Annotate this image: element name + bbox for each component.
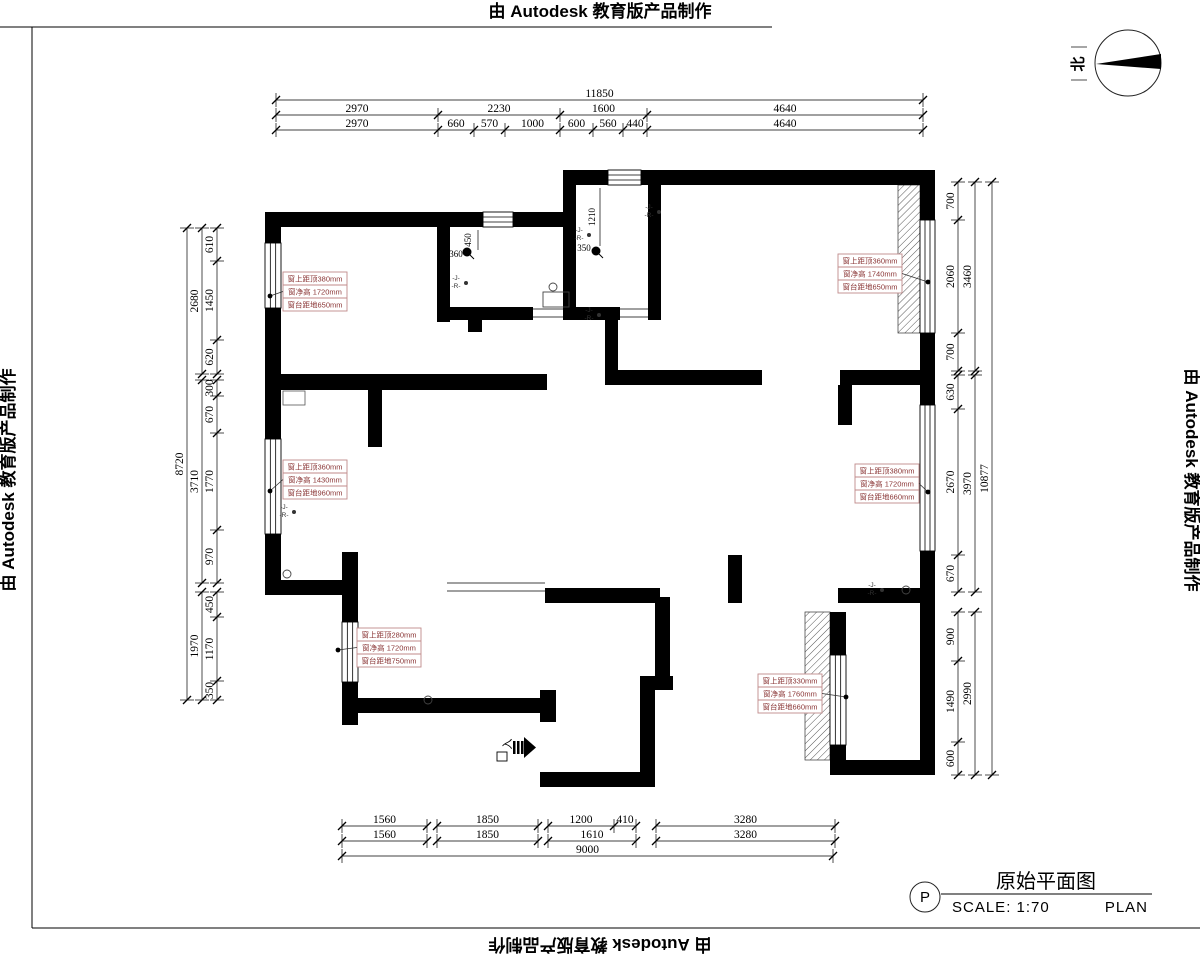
dim-label: 900 [945, 628, 957, 646]
wall [920, 612, 935, 760]
title-marker: P [920, 889, 930, 906]
wall [838, 385, 852, 425]
window-spec-text: 窗上距顶380mm [287, 274, 342, 284]
water-point [587, 233, 591, 237]
dim-label: 450 [204, 596, 216, 614]
dim-label: 670 [945, 565, 957, 583]
water-point-hot-label: -R- [279, 512, 288, 519]
dim-label: 1850 [476, 829, 499, 841]
dim-label: 1170 [204, 637, 216, 660]
wall [265, 212, 281, 244]
stamp-right: 由 Autodesk 教育版产品制作 [1182, 369, 1200, 592]
dim-label: 350 [577, 243, 591, 253]
dim-label: 440 [626, 118, 644, 130]
wall [728, 555, 742, 603]
dim-label: 4640 [774, 118, 797, 130]
window-spec-text: 窗上距顶380mm [859, 466, 914, 476]
wall [563, 170, 608, 185]
wall [445, 307, 533, 320]
water-point-cold-label: -J- [645, 204, 653, 211]
dim-label: 2680 [189, 289, 201, 312]
water-point-cold-label: -J- [452, 275, 460, 282]
window [830, 655, 846, 745]
window-spec-text: 窗净高 1740mm [843, 269, 897, 279]
water-point-cold-label: -J- [868, 582, 876, 589]
dim-label: 1560 [373, 814, 396, 826]
title-block: P 原始平面图 SCALE: 1:70 PLAN [910, 870, 1152, 916]
dim-label: 610 [204, 236, 216, 254]
dim-label: 2060 [945, 265, 957, 288]
wall [265, 308, 281, 439]
dim-label: 1770 [204, 470, 216, 493]
window-spec-text: 窗上距顶360mm [842, 256, 897, 266]
entry-arrow-bar [521, 741, 524, 754]
leader-dot [336, 648, 341, 653]
wall [920, 333, 935, 405]
water-point-cold-label: -J- [280, 504, 288, 511]
wall [265, 374, 547, 390]
dim-label: 2670 [945, 470, 957, 493]
wall [920, 551, 935, 612]
window-spec-text: 窗台距地650mm [842, 282, 897, 292]
wall [640, 676, 673, 690]
window-spec-text: 窗净高 1430mm [288, 475, 342, 485]
dim-label: 670 [204, 406, 216, 424]
floor-plan-sheet: 由 Autodesk 教育版产品制作 由 Autodesk 教育版产品制作 由 … [0, 0, 1200, 960]
dim-label: 1210 [587, 208, 597, 227]
entry-arrow-bar [513, 741, 516, 754]
wall [655, 597, 670, 677]
window-spec-text: 窗台距地960mm [287, 488, 342, 498]
wall [342, 595, 358, 625]
dim-label: 700 [945, 343, 957, 361]
fixture-circle [549, 283, 557, 291]
window [342, 622, 358, 682]
window-spec-text: 窗上距顶330mm [762, 676, 817, 686]
dim-label: 620 [204, 348, 216, 366]
dim-label: 2970 [346, 103, 369, 115]
dim-label: 660 [447, 118, 465, 130]
dim-label: 700 [945, 192, 957, 210]
window [920, 220, 935, 333]
water-point [292, 510, 296, 514]
dim-label: 1610 [581, 829, 604, 841]
dim-label: 3460 [962, 265, 974, 288]
wall [641, 170, 935, 185]
dim-label: 1600 [592, 103, 615, 115]
dim-label: 3970 [962, 472, 974, 495]
wall [342, 552, 358, 595]
window [608, 170, 641, 185]
entry-arrow-bar [517, 741, 520, 754]
leader-dot [926, 490, 931, 495]
wall [368, 390, 382, 447]
dim-label: 3280 [734, 829, 757, 841]
wall [540, 772, 655, 787]
window [265, 439, 281, 534]
stamp-left: 由 Autodesk 教育版产品制作 [0, 369, 18, 592]
water-point [657, 210, 661, 214]
dim-label: 1200 [570, 814, 593, 826]
water-point-cold-label: -J- [585, 307, 593, 314]
window [920, 405, 935, 551]
wall [513, 212, 567, 227]
floor-drain-tail [470, 255, 474, 259]
water-point-hot-label: -R- [867, 590, 876, 597]
window-spec-text: 窗净高 1720mm [362, 643, 416, 653]
dim-label: 630 [945, 383, 957, 401]
dim-label: 560 [599, 118, 617, 130]
dim-label: 4640 [774, 103, 797, 115]
north-arrow: 北 [1070, 30, 1161, 96]
window-spec-text: 窗台距地660mm [762, 702, 817, 712]
dim-label: 600 [568, 118, 586, 130]
drawing-scale: SCALE: 1:70 [952, 899, 1050, 916]
dim-label: 1000 [521, 118, 544, 130]
leader-dot [844, 695, 849, 700]
dim-label: 2990 [962, 682, 974, 705]
wall [563, 185, 576, 320]
dim-label: 300 [204, 379, 216, 397]
stamp-top: 由 Autodesk 教育版产品制作 [489, 1, 712, 21]
dim-label: 1970 [189, 634, 201, 657]
dim-label: 2230 [488, 103, 511, 115]
fixture-circle [283, 570, 291, 578]
dim-label: 600 [945, 750, 957, 768]
leader-dot [268, 294, 273, 299]
drawing-title: 原始平面图 [996, 870, 1096, 893]
stamp-bottom: 由 Autodesk 教育版产品制作 [489, 935, 712, 955]
window [265, 243, 281, 308]
wall [830, 745, 846, 775]
door-frame [283, 391, 305, 405]
window-spec-text: 窗净高 1760mm [763, 689, 817, 699]
water-point [597, 313, 601, 317]
dim-label: 2970 [346, 118, 369, 130]
window-spec-text: 窗上距顶280mm [361, 630, 416, 640]
wall [540, 690, 556, 722]
dim-label: 11850 [585, 88, 614, 100]
dim-label: 8720 [174, 452, 186, 475]
leader-dot [926, 280, 931, 285]
dim-label: 1490 [945, 690, 957, 713]
north-label: 北 [1070, 56, 1087, 71]
entry-arrow-head [524, 737, 536, 758]
window-spec-text: 窗台距地650mm [287, 300, 342, 310]
door-openings [283, 309, 648, 591]
wall [468, 320, 482, 332]
wall [265, 580, 345, 595]
wall [605, 370, 762, 385]
dim-label: 970 [204, 548, 216, 566]
wall [265, 212, 483, 227]
floor-drain-tail [599, 254, 603, 258]
water-point-cold-label: -J- [575, 227, 583, 234]
entry-square [497, 752, 507, 761]
window-spec-text: 窗净高 1720mm [860, 479, 914, 489]
wall [920, 185, 935, 220]
north-needle [1096, 54, 1161, 69]
drawing-plan-tag: PLAN [1105, 899, 1148, 916]
window-spec-text: 窗净高 1720mm [288, 287, 342, 297]
dim-label: 9000 [576, 844, 599, 856]
dim-label: 450 [463, 233, 473, 247]
window-spec-text: 窗上距顶360mm [287, 462, 342, 472]
window-spec-text: 窗台距地660mm [859, 492, 914, 502]
water-point [464, 281, 468, 285]
window-spec-text: 窗台距地750mm [361, 656, 416, 666]
dim-label: 570 [481, 118, 499, 130]
dim-label: 350 [204, 682, 216, 700]
dim-label: 3710 [189, 470, 201, 493]
water-point-hot-label: -R- [644, 212, 653, 219]
wall [830, 612, 846, 655]
wall [342, 698, 556, 713]
dim-label: 1560 [373, 829, 396, 841]
water-point [880, 588, 884, 592]
window [483, 212, 513, 227]
dim-label: 360 [449, 249, 463, 259]
entry-label: 入 [502, 739, 514, 750]
dim-label: 10877 [979, 464, 991, 493]
wall [640, 690, 655, 787]
wall [545, 588, 660, 603]
floor-plan-drawing: 由 Autodesk 教育版产品制作 由 Autodesk 教育版产品制作 由 … [0, 0, 1200, 960]
dim-label: 1450 [204, 289, 216, 312]
water-point-hot-label: -R- [584, 315, 593, 322]
dim-label: 3280 [734, 814, 757, 826]
entry-marker: 入 [497, 737, 536, 761]
window-spec-label: 窗上距顶380mm窗净高 1720mm窗台距地660mm [855, 464, 930, 503]
dim-label: 410 [616, 814, 634, 826]
leader-dot [268, 489, 273, 494]
water-point-hot-label: -R- [451, 283, 460, 290]
dim-label: 1850 [476, 814, 499, 826]
water-point-hot-label: -R- [574, 235, 583, 242]
